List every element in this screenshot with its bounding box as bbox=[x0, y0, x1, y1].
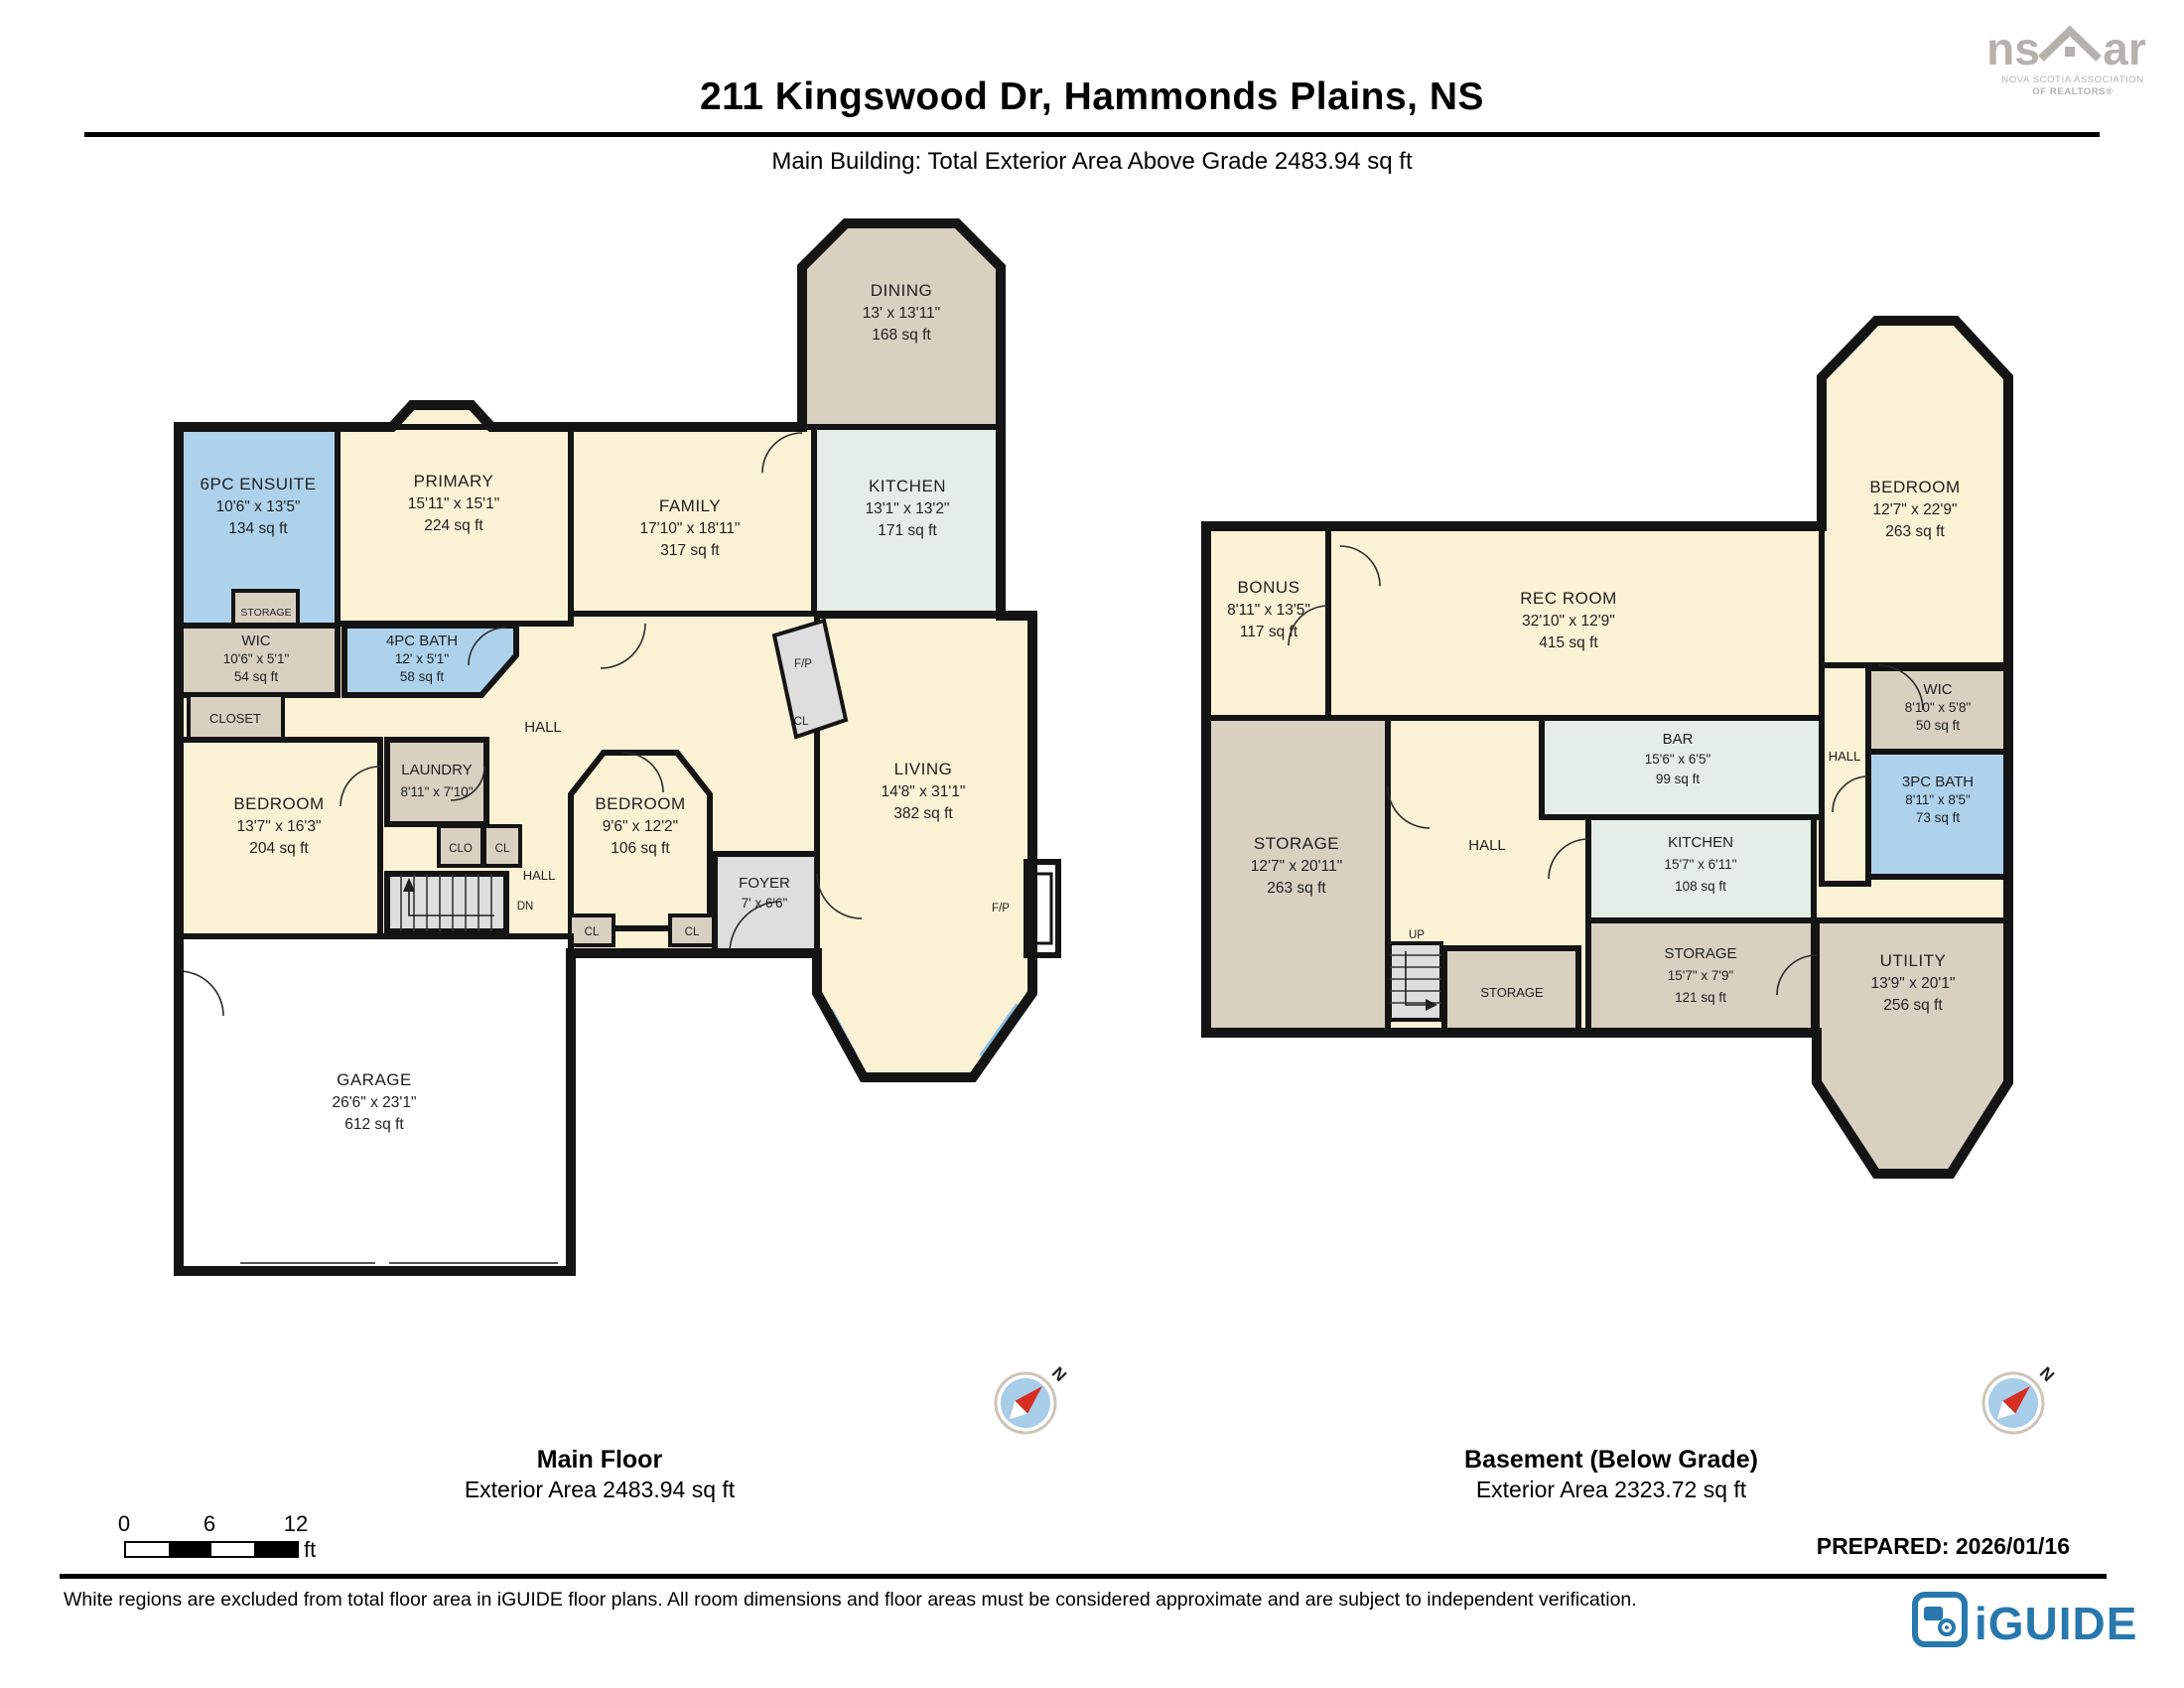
hall-small-right: HALL bbox=[1822, 665, 1868, 884]
nsar-tagline-1: NOVA SCOTIA ASSOCIATION bbox=[2001, 74, 2143, 85]
main-floor-caption-title: Main Floor bbox=[401, 1445, 798, 1476]
label-up: UP bbox=[1409, 929, 1425, 941]
svg-text:KITCHEN: KITCHEN bbox=[869, 477, 946, 495]
svg-text:N: N bbox=[1048, 1363, 1070, 1385]
footer-rule bbox=[60, 1574, 2107, 1579]
scale-bar: 0 6 12 ft bbox=[99, 1511, 437, 1581]
basement-plan: BONUS 8'11" x 13'5" 117 sq ft REC ROOM 3… bbox=[1181, 298, 2075, 1192]
title-rule bbox=[84, 132, 2100, 137]
svg-text:HALL: HALL bbox=[1829, 749, 1861, 764]
basement-compass-icon: N bbox=[1969, 1358, 2058, 1448]
nsar-roof-dot bbox=[2065, 47, 2075, 57]
main-floor-plan: DINING 13' x 13'11" 168 sq ft KITCHEN 13… bbox=[129, 179, 1072, 1321]
svg-text:121 sq ft: 121 sq ft bbox=[1675, 990, 1726, 1005]
svg-text:13'1" x 13'2": 13'1" x 13'2" bbox=[865, 500, 949, 517]
svg-text:WIC: WIC bbox=[241, 633, 270, 649]
svg-text:8'11" x 7'10": 8'11" x 7'10" bbox=[400, 784, 473, 799]
svg-text:FOYER: FOYER bbox=[739, 875, 790, 892]
svg-text:GARAGE: GARAGE bbox=[337, 1070, 412, 1089]
room-dining: DINING 13' x 13'11" 168 sq ft bbox=[802, 223, 1001, 427]
svg-text:CL: CL bbox=[685, 926, 700, 938]
scale-unit: ft bbox=[304, 1537, 316, 1563]
svg-text:10'6" x 5'1": 10'6" x 5'1" bbox=[223, 651, 290, 666]
svg-text:17'10" x 18'11": 17'10" x 18'11" bbox=[639, 520, 740, 537]
svg-text:263 sq ft: 263 sq ft bbox=[1885, 523, 1945, 540]
page-title: 211 Kingswood Dr, Hammonds Plains, NS bbox=[0, 75, 2184, 119]
svg-text:15'11" x 15'1": 15'11" x 15'1" bbox=[408, 495, 499, 512]
room-kitchen: KITCHEN 13'1" x 13'2" 171 sq ft bbox=[814, 427, 1001, 614]
scale-tick-0: 0 bbox=[116, 1511, 132, 1537]
prepared-date: PREPARED: 2026/01/16 bbox=[1648, 1533, 2070, 1560]
svg-text:10'6" x 13'5": 10'6" x 13'5" bbox=[215, 498, 300, 515]
svg-text:UTILITY: UTILITY bbox=[1880, 951, 1947, 970]
svg-text:73 sq ft: 73 sq ft bbox=[1916, 810, 1961, 825]
svg-text:WIC: WIC bbox=[1923, 681, 1952, 698]
svg-text:12'7" x 22'9": 12'7" x 22'9" bbox=[1872, 501, 1957, 518]
svg-text:108 sq ft: 108 sq ft bbox=[1675, 879, 1726, 894]
svg-text:8'10" x 5'8": 8'10" x 5'8" bbox=[1905, 700, 1972, 715]
svg-text:15'6" x 6'5": 15'6" x 6'5" bbox=[1645, 752, 1711, 767]
svg-text:12' x 5'1": 12' x 5'1" bbox=[395, 651, 449, 666]
svg-text:26'6" x 23'1": 26'6" x 23'1" bbox=[332, 1094, 416, 1111]
svg-text:13' x 13'11": 13' x 13'11" bbox=[863, 305, 940, 322]
svg-text:50 sq ft: 50 sq ft bbox=[1916, 718, 1961, 733]
label-hall-lower: HALL bbox=[523, 868, 556, 883]
room-closet: CLOSET bbox=[189, 695, 283, 740]
nsar-tagline-2: OF REALTORS® bbox=[2032, 86, 2113, 97]
room-bar: BAR 15'6" x 6'5" 99 sq ft bbox=[1542, 718, 1822, 817]
room-basement-kitchen: KITCHEN 15'7" x 6'11" 108 sq ft bbox=[1588, 817, 1814, 920]
room-bedroom-1: BEDROOM 13'7" x 16'3" 204 sq ft bbox=[179, 740, 380, 936]
svg-text:STORAGE: STORAGE bbox=[1480, 985, 1544, 1000]
nsar-text-ar: ar bbox=[2103, 23, 2146, 74]
svg-text:8'11" x 13'5": 8'11" x 13'5" bbox=[1227, 602, 1310, 619]
room-primary: PRIMARY 15'11" x 15'1" 224 sq ft bbox=[338, 405, 571, 624]
room-storage-large: STORAGE 12'7" x 20'11" 263 sq ft bbox=[1206, 718, 1388, 1033]
iguide-logo-text: iGUIDE bbox=[1975, 1598, 2137, 1649]
nsar-logo: ns ar NOVA SCOTIA ASSOCIATION OF REALTOR… bbox=[1985, 15, 2174, 100]
svg-text:CL: CL bbox=[495, 843, 510, 855]
svg-text:REC ROOM: REC ROOM bbox=[1520, 589, 1617, 608]
room-wic: WIC 10'6" x 5'1" 54 sq ft bbox=[179, 626, 338, 695]
svg-text:12'7" x 20'11": 12'7" x 20'11" bbox=[1251, 858, 1342, 875]
closet-clo: CLO bbox=[439, 826, 482, 866]
basement-caption: Basement (Below Grade) Exterior Area 232… bbox=[1413, 1445, 1810, 1504]
stairs-down bbox=[387, 874, 506, 931]
scale-tick-12: 12 bbox=[282, 1511, 310, 1537]
svg-text:32'10" x 12'9": 32'10" x 12'9" bbox=[1522, 613, 1615, 630]
svg-text:CL: CL bbox=[794, 716, 809, 728]
room-ensuite: 6PC ENSUITE 10'6" x 13'5" 134 sq ft STOR… bbox=[179, 427, 338, 626]
label-hall-upper: HALL bbox=[524, 719, 562, 736]
closet-entry-left: CL bbox=[570, 915, 614, 945]
room-rec-room: REC ROOM 32'10" x 12'9" 415 sq ft bbox=[1328, 526, 1822, 718]
svg-text:LIVING: LIVING bbox=[894, 760, 953, 778]
svg-text:256 sq ft: 256 sq ft bbox=[1883, 997, 1943, 1014]
svg-text:8'11" x 8'5": 8'11" x 8'5" bbox=[1905, 792, 1971, 807]
svg-text:STORAGE: STORAGE bbox=[1254, 834, 1339, 853]
svg-text:13'7" x 16'3": 13'7" x 16'3" bbox=[236, 818, 321, 835]
scale-bar-segments bbox=[124, 1541, 299, 1558]
svg-text:STORAGE: STORAGE bbox=[1664, 945, 1736, 962]
iguide-logo: iGUIDE bbox=[1911, 1587, 2169, 1656]
room-living: LIVING 14'8" x 31'1" 382 sq ft bbox=[817, 616, 1032, 1077]
svg-text:204 sq ft: 204 sq ft bbox=[249, 840, 309, 857]
svg-text:317 sq ft: 317 sq ft bbox=[660, 542, 720, 559]
svg-text:CL: CL bbox=[585, 926, 600, 938]
svg-text:224 sq ft: 224 sq ft bbox=[424, 517, 483, 534]
svg-text:612 sq ft: 612 sq ft bbox=[344, 1116, 404, 1133]
svg-text:54 sq ft: 54 sq ft bbox=[234, 669, 279, 684]
svg-text:3PC BATH: 3PC BATH bbox=[1902, 774, 1974, 790]
iguide-logo-glyph bbox=[1924, 1607, 1943, 1620]
svg-text:415 sq ft: 415 sq ft bbox=[1539, 634, 1598, 651]
room-garage: GARAGE 26'6" x 23'1" 612 sq ft bbox=[179, 936, 571, 1271]
svg-text:99 sq ft: 99 sq ft bbox=[1656, 772, 1701, 786]
svg-text:CLO: CLO bbox=[449, 843, 473, 855]
svg-text:F/P: F/P bbox=[992, 903, 1010, 914]
room-storage-small: STORAGE bbox=[1444, 948, 1578, 1033]
stairs-up: UP bbox=[1390, 929, 1441, 1020]
svg-text:N: N bbox=[2036, 1363, 2058, 1385]
svg-text:171 sq ft: 171 sq ft bbox=[878, 522, 937, 539]
room-4pc-bath: 4PC BATH 12' x 5'1" 58 sq ft bbox=[344, 626, 516, 695]
room-bedroom-2: BEDROOM 9'6" x 12'2" 106 sq ft bbox=[571, 753, 710, 928]
label-hall-center: HALL bbox=[1468, 837, 1506, 854]
svg-text:BEDROOM: BEDROOM bbox=[1869, 478, 1960, 496]
svg-text:FAMILY: FAMILY bbox=[659, 496, 721, 515]
scale-tick-6: 6 bbox=[202, 1511, 217, 1537]
room-laundry: LAUNDRY 8'11" x 7'10" bbox=[387, 740, 486, 824]
svg-text:7' x 6'6": 7' x 6'6" bbox=[742, 896, 788, 911]
room-3pc-bath: 3PC BATH 8'11" x 8'5" 73 sq ft bbox=[1868, 752, 2008, 877]
svg-text:KITCHEN: KITCHEN bbox=[1668, 834, 1733, 851]
svg-text:263 sq ft: 263 sq ft bbox=[1267, 880, 1326, 897]
main-floor-compass-icon: N bbox=[981, 1358, 1070, 1448]
svg-text:134 sq ft: 134 sq ft bbox=[228, 520, 288, 537]
svg-text:14'8" x 31'1": 14'8" x 31'1" bbox=[881, 783, 965, 800]
svg-text:4PC BATH: 4PC BATH bbox=[386, 633, 458, 649]
room-basement-bedroom: BEDROOM 12'7" x 22'9" 263 sq ft bbox=[1822, 321, 2008, 665]
nsar-text-ns: ns bbox=[1986, 23, 2040, 74]
svg-text:9'6" x 12'2": 9'6" x 12'2" bbox=[603, 818, 678, 835]
basement-caption-title: Basement (Below Grade) bbox=[1413, 1445, 1810, 1476]
svg-text:13'9" x 20'1": 13'9" x 20'1" bbox=[1870, 975, 1955, 992]
room-storage-mid: STORAGE 15'7" x 7'9" 121 sq ft bbox=[1588, 920, 1814, 1033]
svg-text:106 sq ft: 106 sq ft bbox=[611, 840, 670, 857]
svg-text:LAUNDRY: LAUNDRY bbox=[401, 762, 472, 778]
svg-text:15'7" x 7'9": 15'7" x 7'9" bbox=[1668, 968, 1734, 983]
label-dn: DN bbox=[517, 901, 534, 913]
closet-entry-right: CL bbox=[670, 915, 714, 945]
disclaimer-text: White regions are excluded from total fl… bbox=[64, 1589, 1751, 1612]
svg-text:F/P: F/P bbox=[794, 658, 812, 670]
closet-cl-laundry: CL bbox=[484, 826, 520, 866]
room-basement-wic: WIC 8'10" x 5'8" 50 sq ft bbox=[1868, 668, 2008, 752]
label-closet: CLOSET bbox=[209, 711, 261, 726]
room-bonus: BONUS 8'11" x 13'5" 117 sq ft bbox=[1208, 526, 1328, 718]
svg-text:BAR: BAR bbox=[1663, 731, 1694, 748]
floor-plan-page: 211 Kingswood Dr, Hammonds Plains, NS Ma… bbox=[0, 0, 2184, 1688]
svg-text:58 sq ft: 58 sq ft bbox=[400, 669, 445, 684]
svg-text:BEDROOM: BEDROOM bbox=[595, 794, 685, 813]
svg-text:DINING: DINING bbox=[871, 281, 933, 300]
svg-text:382 sq ft: 382 sq ft bbox=[893, 805, 953, 822]
svg-text:6PC ENSUITE: 6PC ENSUITE bbox=[201, 475, 317, 493]
main-floor-caption: Main Floor Exterior Area 2483.94 sq ft bbox=[401, 1445, 798, 1504]
svg-text:168 sq ft: 168 sq ft bbox=[872, 327, 931, 344]
svg-text:PRIMARY: PRIMARY bbox=[414, 472, 494, 491]
room-family: FAMILY 17'10" x 18'11" 317 sq ft bbox=[571, 427, 814, 614]
main-floor-caption-area: Exterior Area 2483.94 sq ft bbox=[401, 1476, 798, 1504]
svg-text:BONUS: BONUS bbox=[1238, 578, 1300, 597]
page-subtitle: Main Building: Total Exterior Area Above… bbox=[0, 148, 2184, 176]
label-storage: STORAGE bbox=[240, 607, 291, 619]
svg-text:BEDROOM: BEDROOM bbox=[233, 794, 324, 813]
basement-caption-area: Exterior Area 2323.72 sq ft bbox=[1413, 1476, 1810, 1504]
svg-text:15'7" x 6'11": 15'7" x 6'11" bbox=[1664, 857, 1736, 872]
